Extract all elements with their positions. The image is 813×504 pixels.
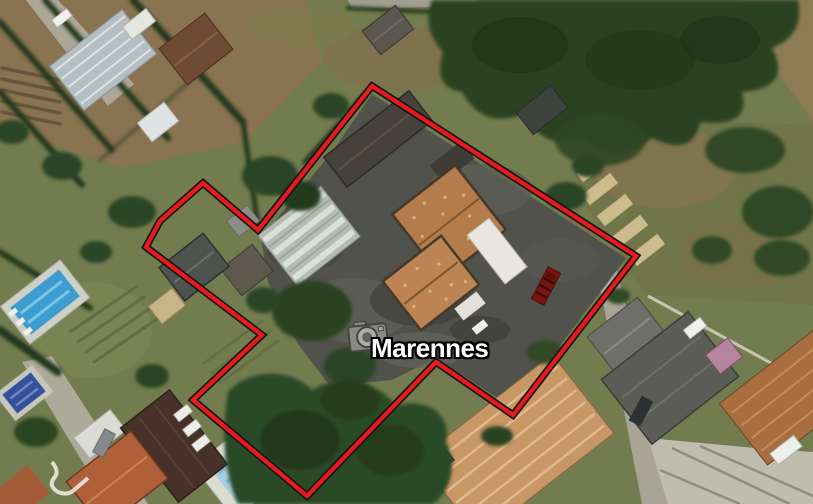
aerial-imagery	[0, 0, 813, 504]
place-label[interactable]: Marennes	[346, 316, 392, 356]
satellite-map-view[interactable]: Marennes	[0, 0, 813, 504]
place-label-text: Marennes	[371, 333, 488, 364]
